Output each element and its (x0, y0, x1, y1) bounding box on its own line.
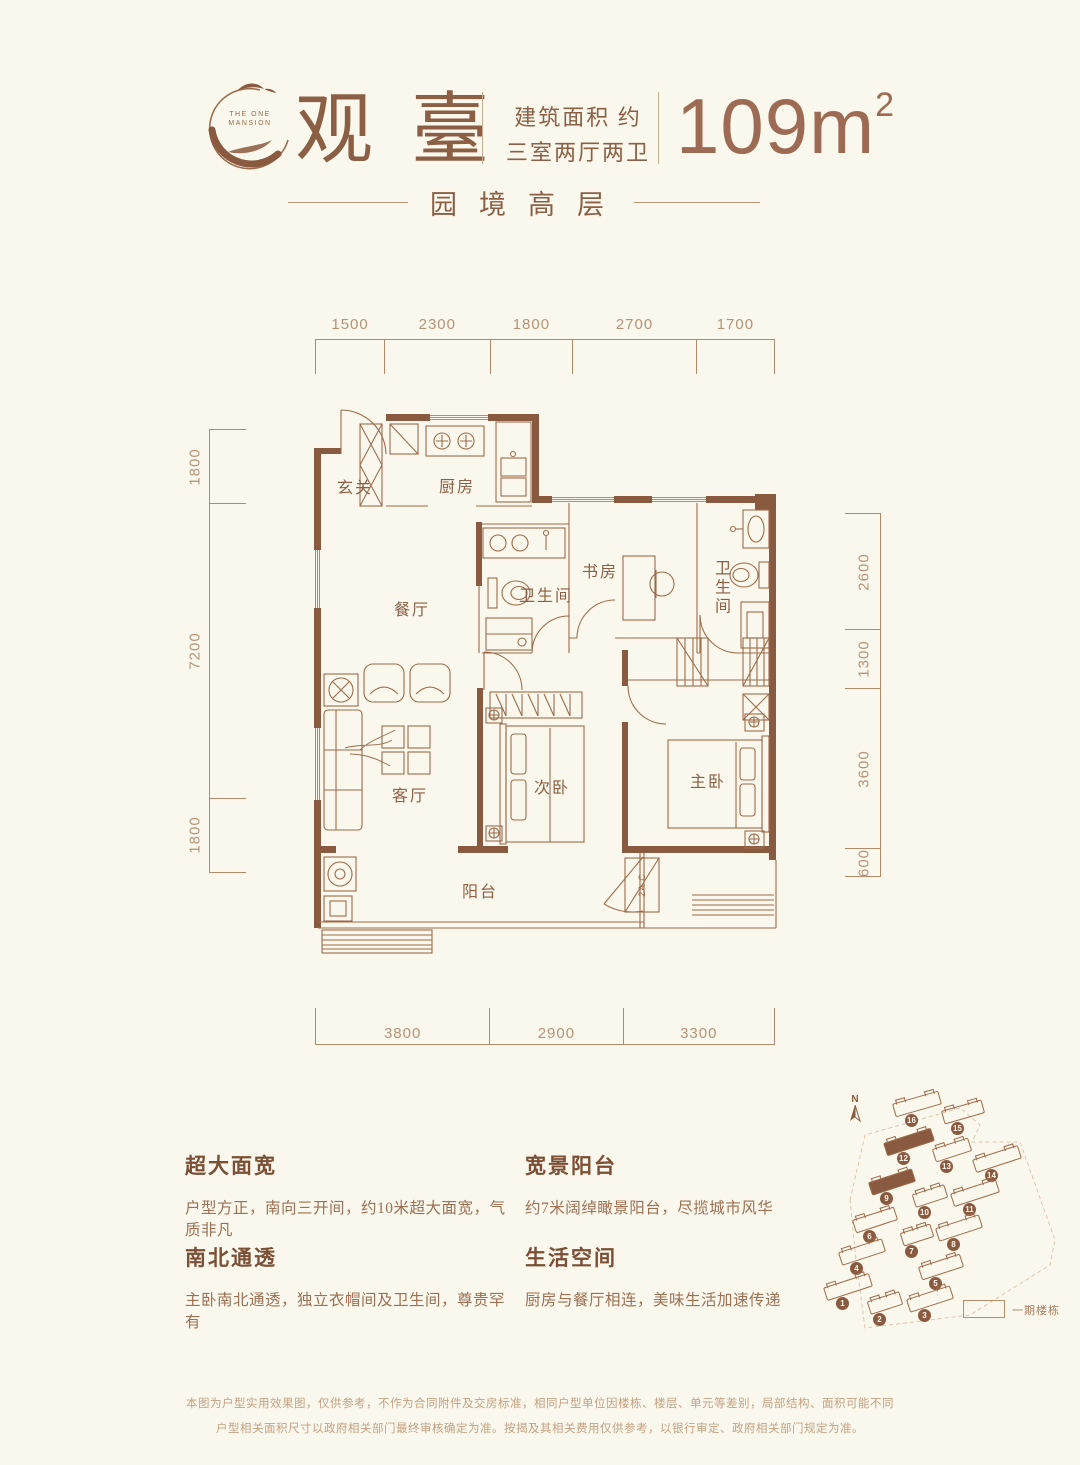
area-unit: m (809, 88, 875, 164)
area-number: 109 (676, 88, 809, 164)
feature-title-2: 南北通透 (185, 1242, 520, 1272)
site-building-number: 16 (905, 1114, 918, 1127)
site-building-number: 2 (873, 1313, 886, 1326)
dimension-top: 15002300180027001700 (315, 339, 775, 374)
site-building-number: 15 (951, 1122, 964, 1135)
disclaimer-line2: 户型相关面积尺寸以政府相关部门最终审核确定为准。按揭及其相关费用仅供参考，以银行… (140, 1417, 940, 1442)
dimension-segment: 2600 (845, 513, 880, 629)
site-building-number: 9 (880, 1192, 893, 1205)
room-label-balcony: 阳台 (462, 878, 498, 902)
dimension-label: 2900 (538, 1025, 575, 1042)
dimension-label: 2700 (616, 316, 653, 333)
area-value: 109m2 (676, 88, 894, 164)
dimension-segment: 1300 (845, 629, 880, 688)
page-title: 观臺 (295, 82, 527, 178)
dimension-label: 1500 (331, 316, 368, 333)
dimension-segment: 2900 (489, 1008, 622, 1044)
dimension-left: 180072001800 (209, 429, 246, 873)
dimension-segment: 3300 (623, 1008, 775, 1044)
header-divider-left (482, 92, 483, 164)
dimension-label: 1800 (187, 800, 204, 870)
room-label-master: 主卧 (690, 768, 726, 792)
dimension-label: 1700 (717, 316, 754, 333)
room-label-bath1: 卫生间 (519, 582, 573, 606)
subtitle-row: 园境高层 (288, 186, 790, 218)
room-label-study: 书房 (582, 558, 618, 582)
dimension-label: 1800 (513, 316, 550, 333)
dimension-segment: 2700 (572, 340, 696, 374)
plan-lines (318, 410, 776, 953)
dimension-segment: 1500 (315, 340, 384, 374)
room-label-bath2: 卫生间 (708, 560, 732, 617)
dimension-label: 7200 (187, 616, 204, 686)
subtitle: 园境高层 (430, 183, 626, 222)
spec-line1: 建筑面积 约 (500, 100, 656, 135)
dimension-segment: 1800 (210, 429, 246, 503)
room-label-foyer: 玄关 (337, 474, 373, 498)
ac-unit-label: 2A C (637, 873, 647, 897)
brand-logo (198, 76, 302, 180)
dimension-segment: 1800 (490, 340, 573, 374)
site-building-number: 12 (897, 1152, 910, 1165)
dimension-segment: 1700 (696, 340, 775, 374)
subtitle-line-right (634, 202, 760, 203)
feature-block-3: 宽景阳台 约7米阔绰瞰景阳台，尽揽城市风华 (525, 1150, 860, 1218)
spec-line2: 三室两厅两卫 (500, 135, 656, 170)
site-building-number: 1 (836, 1297, 849, 1310)
walls (314, 414, 776, 928)
feature-block-2: 南北通透 主卧南北通透，独立衣帽间及卫生间，尊贵罕有 (185, 1242, 520, 1332)
brand-logo-text: THE ONE MANSION (198, 110, 302, 128)
site-building-number: 7 (905, 1245, 918, 1258)
dimension-label: 1300 (856, 624, 873, 694)
dimension-segment: 600 (845, 848, 880, 877)
feature-desc-3: 约7米阔绰瞰景阳台，尽揽城市风华 (525, 1196, 860, 1218)
feature-desc-2: 主卧南北通透，独立衣帽间及卫生间，尊贵罕有 (185, 1288, 520, 1332)
room-label-kitchen: 厨房 (439, 473, 475, 497)
disclaimer-line1: 本图为户型实用效果图，仅供参考，不作为合同附件及交房标准，相同户型单位因楼栋、楼… (140, 1392, 940, 1417)
disclaimer: 本图为户型实用效果图，仅供参考，不作为合同附件及交房标准，相同户型单位因楼栋、楼… (140, 1392, 940, 1442)
feature-block-4: 生活空间 厨房与餐厅相连，美味生活加速传递 (525, 1242, 860, 1310)
dimension-label: 600 (856, 828, 873, 898)
dimension-label: 3600 (856, 734, 873, 804)
feature-title-4: 生活空间 (525, 1242, 860, 1272)
feature-desc-4: 厨房与餐厅相连，美味生活加速传递 (525, 1288, 860, 1310)
room-label-dining: 餐厅 (394, 596, 430, 620)
dimension-bottom: 380029003300 (315, 1008, 775, 1045)
subtitle-line-left (288, 202, 408, 203)
room-label-living: 客厅 (392, 782, 428, 806)
dimension-label: 1800 (187, 432, 204, 502)
dimension-label: 2300 (419, 316, 456, 333)
site-building-number: 3 (918, 1309, 931, 1322)
site-building-number: 13 (940, 1160, 953, 1173)
header-divider-right (658, 92, 659, 164)
dimension-right: 260013003600600 (845, 513, 881, 877)
room-label-bedroom2: 次卧 (534, 774, 570, 798)
spec-text: 建筑面积 约 三室两厅两卫 (500, 100, 656, 170)
site-building-number: 8 (947, 1238, 960, 1251)
area-superscript: 2 (875, 88, 894, 122)
feature-block-1: 超大面宽 户型方正，南向三开间，约10米超大面宽，气质非凡 (185, 1150, 520, 1240)
feature-title-3: 宽景阳台 (525, 1150, 860, 1180)
dimension-label: 2600 (856, 537, 873, 607)
dimension-label: 3800 (384, 1025, 421, 1042)
dimension-label: 3300 (680, 1025, 717, 1042)
floor-plan (300, 398, 790, 958)
dimension-segment: 3600 (845, 688, 880, 849)
brand-logo-line1: THE ONE (198, 110, 302, 119)
brand-logo-line2: MANSION (198, 119, 302, 128)
legend-swatch (963, 1300, 1005, 1318)
dimension-segment: 2300 (384, 340, 489, 374)
dimension-segment: 7200 (210, 503, 246, 797)
dimension-segment: 3800 (315, 1008, 489, 1044)
dimension-segment: 1800 (210, 798, 246, 873)
legend-label: 一期楼栋 (1012, 1302, 1060, 1318)
feature-title-1: 超大面宽 (185, 1150, 520, 1180)
site-building-number: 10 (918, 1206, 931, 1219)
feature-desc-1: 户型方正，南向三开间，约10米超大面宽，气质非凡 (185, 1196, 520, 1240)
